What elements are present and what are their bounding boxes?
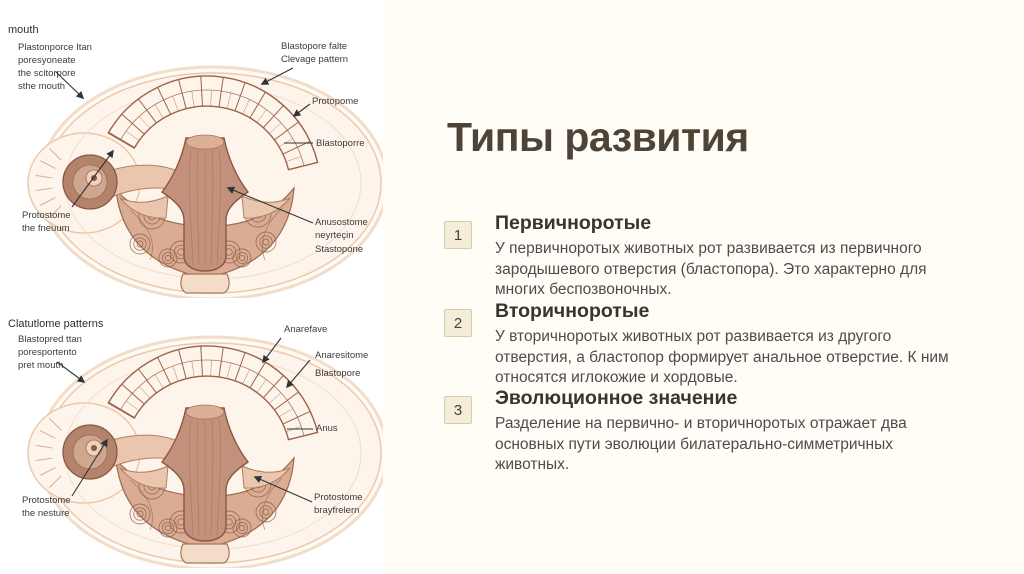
diagram-label-cleavage-pattern: Blastopore falte Clevage pattern (281, 40, 348, 66)
section-protostomes: 1 Первичноротые У первичноротых животных… (444, 212, 974, 301)
diagram-panel: mouth Plastonporce Itan poresyoneate the… (0, 0, 400, 574)
diagram-label-protostome-brayfrelern: Protostome brayfrelern (314, 491, 363, 517)
diagram-label-anusostome: Anusostome neyrteçin (315, 216, 368, 242)
diagram-label-anarefave: Anarefave (284, 323, 327, 336)
diagram-label-protostome: Protostome the fneuum (22, 209, 71, 235)
diagram-label-blastopore-mouth: Plastonporce Itan poresyoneate the scito… (18, 41, 92, 93)
section-body: Разделение на первично- и вторичноротых … (495, 414, 974, 476)
section-number-badge: 1 (444, 221, 472, 249)
diagram-label-blastopred: Blastopred ttan poresportento pret mouth (18, 333, 82, 372)
slide: mouth Plastonporce Itan poresyoneate the… (0, 0, 1024, 574)
diagram-label-anus: Anus (316, 422, 338, 435)
diagram-label-blastopore: Blastoporre (316, 137, 365, 150)
section-number-badge: 2 (444, 309, 472, 337)
section-heading: Первичноротые (495, 212, 974, 235)
section-deuterostomes: 2 Вторичноротые У вторичноротых животных… (444, 300, 974, 389)
section-heading: Эволюционное значение (495, 387, 974, 410)
page-title: Типы развития (447, 114, 749, 161)
diagram-label-anaresitome: Anaresitome (315, 349, 368, 362)
embryo-cross-section-illustration (0, 290, 398, 568)
section-body: У вторичноротых животных рот развивается… (495, 327, 974, 389)
diagram-label-protopome: Protopome (312, 95, 358, 108)
diagram-label-protostome-nesture: Protostome the nesture (22, 494, 71, 520)
diagram-label-stastopone: Stastopone (315, 243, 363, 256)
content-panel: Типы развития 1 Первичноротые У первично… (383, 0, 1024, 574)
protostome-diagram: mouth Plastonporce Itan poresyoneate the… (0, 20, 398, 298)
diagram-label-patterns: Clatutlome patterns (8, 318, 103, 331)
diagram-label-blastopore: Blastopore (315, 367, 360, 380)
section-body: У первичноротых животных рот развивается… (495, 239, 974, 301)
diagram-label-mouth: mouth (8, 24, 39, 37)
section-number-badge: 3 (444, 396, 472, 424)
section-evolutionary-significance: 3 Эволюционное значение Разделение на пе… (444, 387, 974, 476)
deuterostome-diagram: Clatutlome patterns Blastopred ttan pore… (0, 290, 398, 568)
section-heading: Вторичноротые (495, 300, 974, 323)
